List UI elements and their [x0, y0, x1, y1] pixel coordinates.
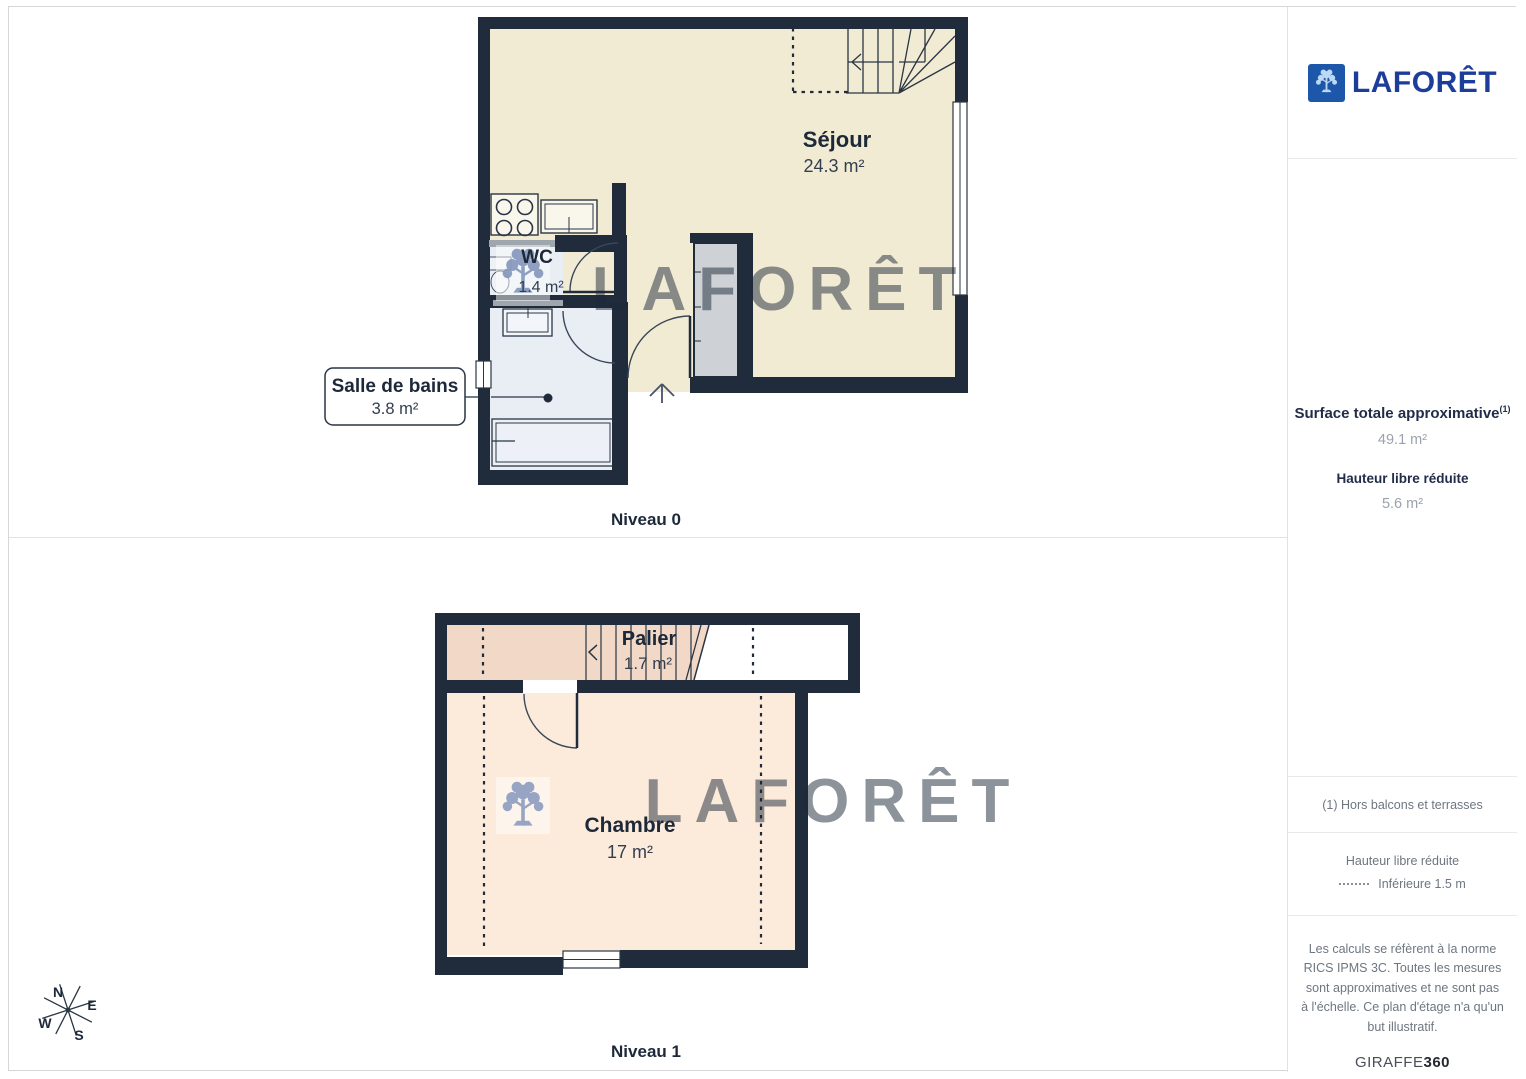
- level0-title: Niveau 0: [611, 510, 681, 529]
- level1-title: Niveau 1: [611, 1042, 681, 1061]
- room-area-chambre: 17 m²: [607, 842, 653, 862]
- window-chambre: [563, 951, 620, 968]
- room-label-wc: WC: [521, 247, 553, 268]
- room-area-wc: 1.4 m²: [518, 279, 564, 296]
- surface-total-title-text: Surface totale approximative: [1294, 405, 1499, 422]
- room-area-salle-de-bains: 3.8 m²: [372, 400, 419, 418]
- room-label-salle-de-bains: Salle de bains: [332, 376, 459, 397]
- legend-title: Hauteur libre réduite: [1288, 854, 1517, 868]
- compass-east: E: [87, 997, 96, 1013]
- footnote: (1) Hors balcons et terrasses: [1288, 777, 1517, 833]
- credit-brand: GIRAFFE: [1355, 1054, 1424, 1071]
- bathtub-icon: [492, 419, 614, 466]
- giraffe360-credit: GIRAFFE360: [1301, 1054, 1504, 1071]
- surface-total-value: 49.1 m²: [1288, 432, 1517, 448]
- room-label-chambre: Chambre: [584, 814, 675, 837]
- stove-icon: [491, 194, 538, 236]
- credit-suffix: 360: [1423, 1054, 1450, 1071]
- reduced-height-value: 5.6 m²: [1288, 496, 1517, 512]
- surface-footnote-marker: (1): [1500, 404, 1511, 414]
- watermark-text: LAFORÊT: [592, 255, 969, 324]
- brand-header: LAFORÊT: [1288, 7, 1517, 159]
- disclaimer-text: Les calculs se réfèrent à la norme RICS …: [1301, 940, 1504, 1037]
- room-label-sejour: Séjour: [803, 127, 872, 152]
- reduced-height-title: Hauteur libre réduite: [1288, 471, 1517, 486]
- brand-name: LAFORÊT: [1352, 68, 1497, 98]
- dotted-line-swatch: [1339, 883, 1369, 885]
- floorplan-page: LAFORÊT Séjour 24.3 m² WC 1.4 m² Salle d…: [0, 0, 1526, 1079]
- floorplan-level1: LAFORÊT Palier 1.7 m² Chambre 17 m² Nive…: [435, 613, 1021, 1061]
- window-bathroom: [476, 361, 491, 388]
- callout-salle-de-bains: Salle de bains 3.8 m²: [325, 368, 479, 425]
- laforet-logo-icon: [1308, 64, 1345, 102]
- room-area-sejour: 24.3 m²: [803, 156, 864, 176]
- floorplan-level0: LAFORÊT Séjour 24.3 m² WC 1.4 m² Salle d…: [325, 17, 968, 529]
- legend-item-label: Inférieure 1.5 m: [1378, 877, 1466, 891]
- legend: Hauteur libre réduite Inférieure 1.5 m: [1288, 833, 1517, 916]
- legal-section: Les calculs se réfèrent à la norme RICS …: [1288, 916, 1517, 1072]
- info-sidebar: LAFORÊT Surface totale approximative(1) …: [1287, 7, 1517, 1072]
- room-area-palier: 1.7 m²: [624, 654, 673, 673]
- entry-corridor-floor: [625, 378, 690, 392]
- compass-north: N: [53, 984, 63, 1000]
- compass-south: S: [74, 1027, 83, 1043]
- surface-summary: Surface totale approximative(1) 49.1 m² …: [1288, 159, 1517, 777]
- compass-icon: N E W S: [34, 976, 102, 1044]
- watermark-text: LAFORÊT: [645, 767, 1022, 836]
- room-label-palier: Palier: [622, 628, 677, 650]
- kitchen-sink-icon: [541, 200, 597, 233]
- surface-total-title: Surface totale approximative(1): [1288, 404, 1517, 422]
- compass-west: W: [38, 1015, 52, 1031]
